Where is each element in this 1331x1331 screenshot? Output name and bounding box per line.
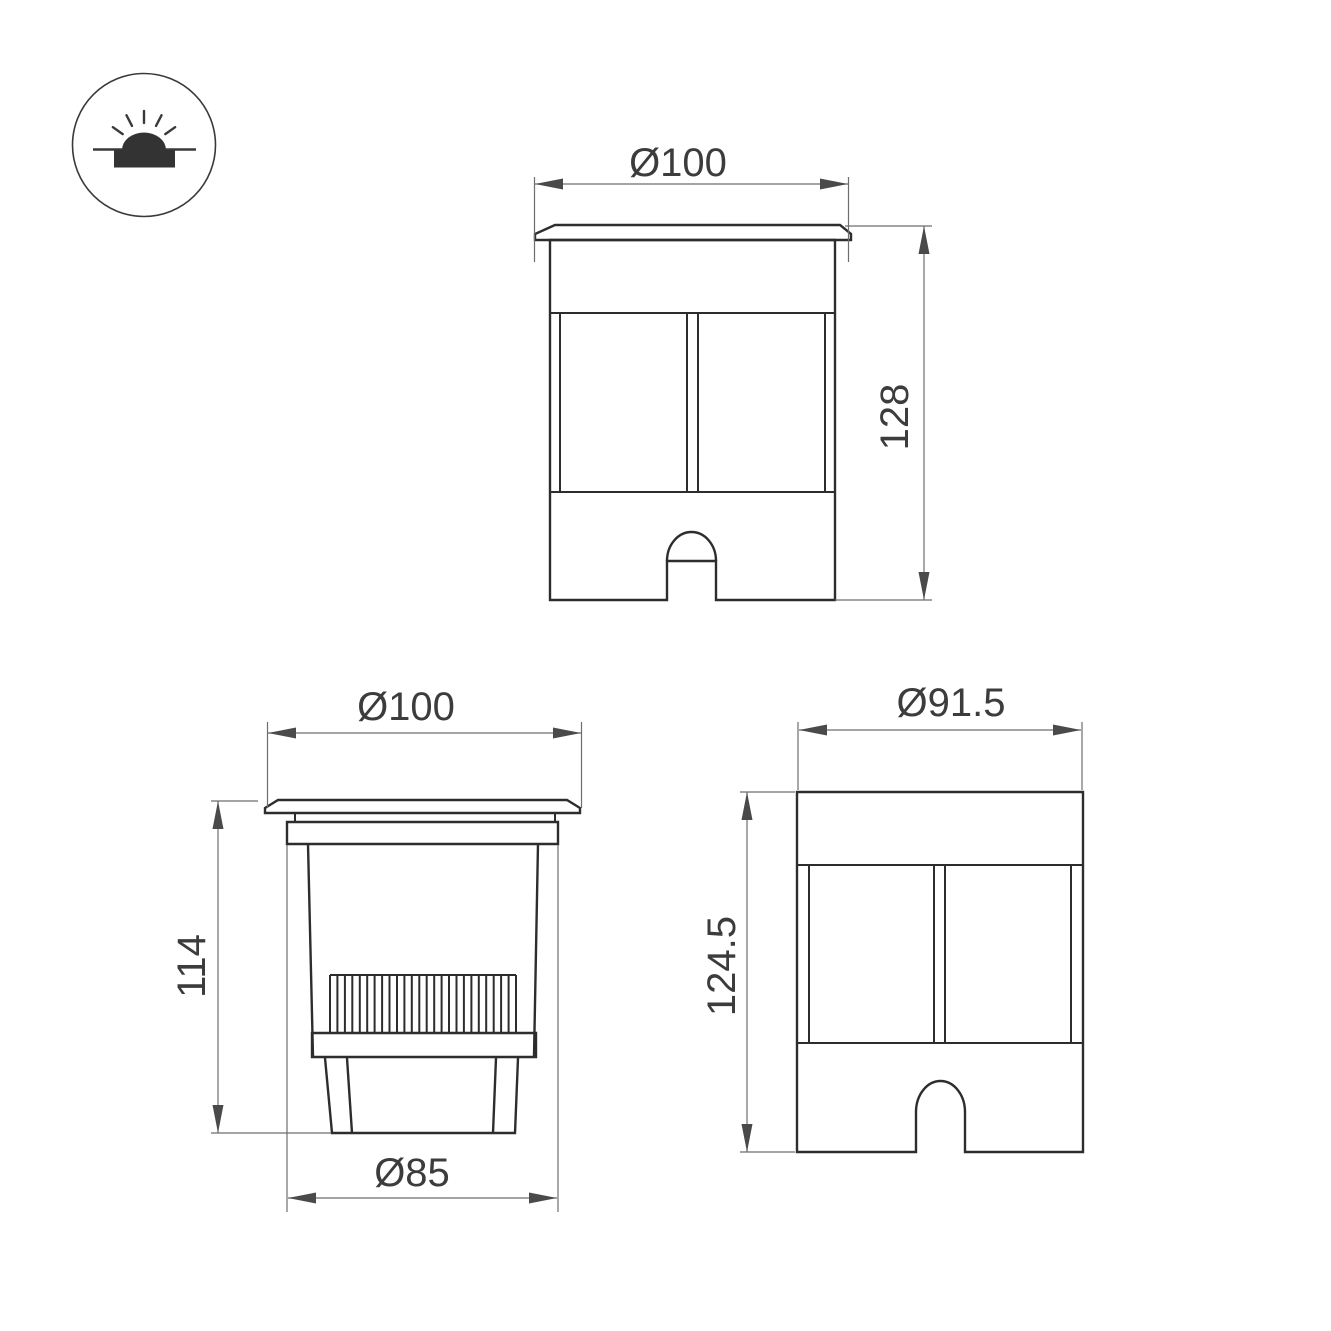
side-height-label: 124.5 [700,916,744,1016]
section-diameter-label: Ø100 [357,685,455,729]
front-diameter-label: Ø100 [629,141,727,185]
side-body-outline [797,792,1083,1152]
lamp-dome-icon [122,133,166,151]
front-cable-arch [667,532,716,561]
side-dimension-lines [740,722,1082,1152]
recessed-ground-light-icon [73,74,216,217]
section-flange-lip [295,813,555,822]
section-base-diameter-label: Ø85 [374,1151,450,1195]
front-body-outline [550,240,835,600]
lamp-housing-icon [114,150,175,168]
front-height-label: 128 [873,384,917,451]
front-view: Ø100 128 [535,141,933,600]
section-view: Ø100 114 Ø85 [170,685,582,1212]
section-dimension-lines [211,722,582,1212]
front-window-lines [550,313,835,492]
front-dimension-arrowheads [535,179,930,601]
section-lamp-plate [312,1033,536,1057]
light-rays-icon [113,111,175,134]
section-height-label: 114 [170,934,214,998]
front-flange [535,225,851,240]
section-collar [287,822,558,844]
section-flange [265,800,580,813]
side-view: Ø91.5 124.5 [700,681,1083,1152]
section-body-walls [308,844,538,1057]
side-window-lines [797,865,1083,1043]
drawing-canvas: Ø100 128 Ø100 114 Ø85 Ø91.5 124.5 [0,0,1331,1331]
side-diameter-label: Ø91.5 [897,681,1006,725]
section-base-socket [325,1058,518,1133]
section-heatsink-ribs [330,975,516,1033]
side-dimension-arrowheads [742,725,1082,1153]
